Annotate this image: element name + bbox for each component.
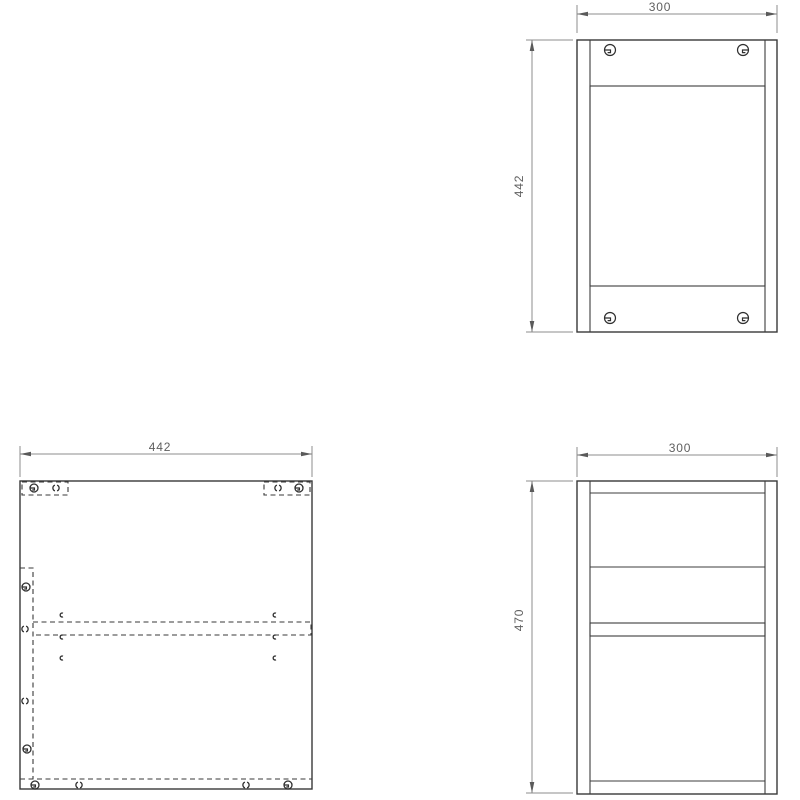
cam-lock-fitting-icon xyxy=(605,45,616,56)
hidden-rail-top-left xyxy=(22,482,68,495)
pilot-hole-icon xyxy=(60,635,63,639)
cam-lock-fitting-icon xyxy=(738,45,749,56)
cam-lock-fitting-icon xyxy=(22,583,30,591)
dowel-hole-icon xyxy=(53,485,59,491)
pilot-hole-icon xyxy=(273,635,276,639)
cam-lock-fitting-icon xyxy=(23,745,31,753)
front-panel-outline xyxy=(577,40,777,332)
dim-front-height: 442 xyxy=(512,40,573,332)
dim-label-side-height: 470 xyxy=(512,609,526,631)
side-shelf-mid xyxy=(590,623,765,636)
view-front-elevation: 300 442 xyxy=(512,0,777,332)
pilot-hole-icon xyxy=(60,613,63,617)
cam-lock-fitting-icon xyxy=(30,484,38,492)
pilot-hole-icon xyxy=(273,656,276,660)
dim-label-side-width: 300 xyxy=(669,441,691,455)
dim-label-front-height: 442 xyxy=(512,175,526,197)
dim-panel-width: 442 xyxy=(20,440,312,477)
cam-lock-fitting-icon xyxy=(284,781,292,789)
view-side-elevation: 300 470 xyxy=(512,441,777,794)
dim-side-width: 300 xyxy=(577,441,777,477)
side-panel-outline xyxy=(577,481,777,794)
cad-drawing-canvas: 300 442 xyxy=(0,0,800,800)
dowel-hole-icon xyxy=(275,485,281,491)
dim-label-front-width: 300 xyxy=(649,0,671,14)
cam-lock-fitting-icon xyxy=(31,781,39,789)
pilot-hole-icon xyxy=(60,656,63,660)
cam-lock-fitting-icon xyxy=(295,484,303,492)
view-panel-face: 442 xyxy=(20,440,312,789)
dowel-hole-icon xyxy=(76,782,82,788)
dim-label-panel-width: 442 xyxy=(149,440,171,454)
pilot-hole-icon xyxy=(273,613,276,617)
cam-lock-fitting-icon xyxy=(605,313,616,324)
front-recessed-panel xyxy=(590,86,765,286)
dowel-hole-icon xyxy=(22,698,28,704)
dim-front-width: 300 xyxy=(577,0,777,33)
dim-side-height: 470 xyxy=(512,481,573,793)
cam-lock-fitting-icon xyxy=(738,313,749,324)
dowel-hole-icon xyxy=(243,782,249,788)
hidden-shelf-mid xyxy=(33,622,311,635)
dowel-hole-icon xyxy=(22,626,28,632)
